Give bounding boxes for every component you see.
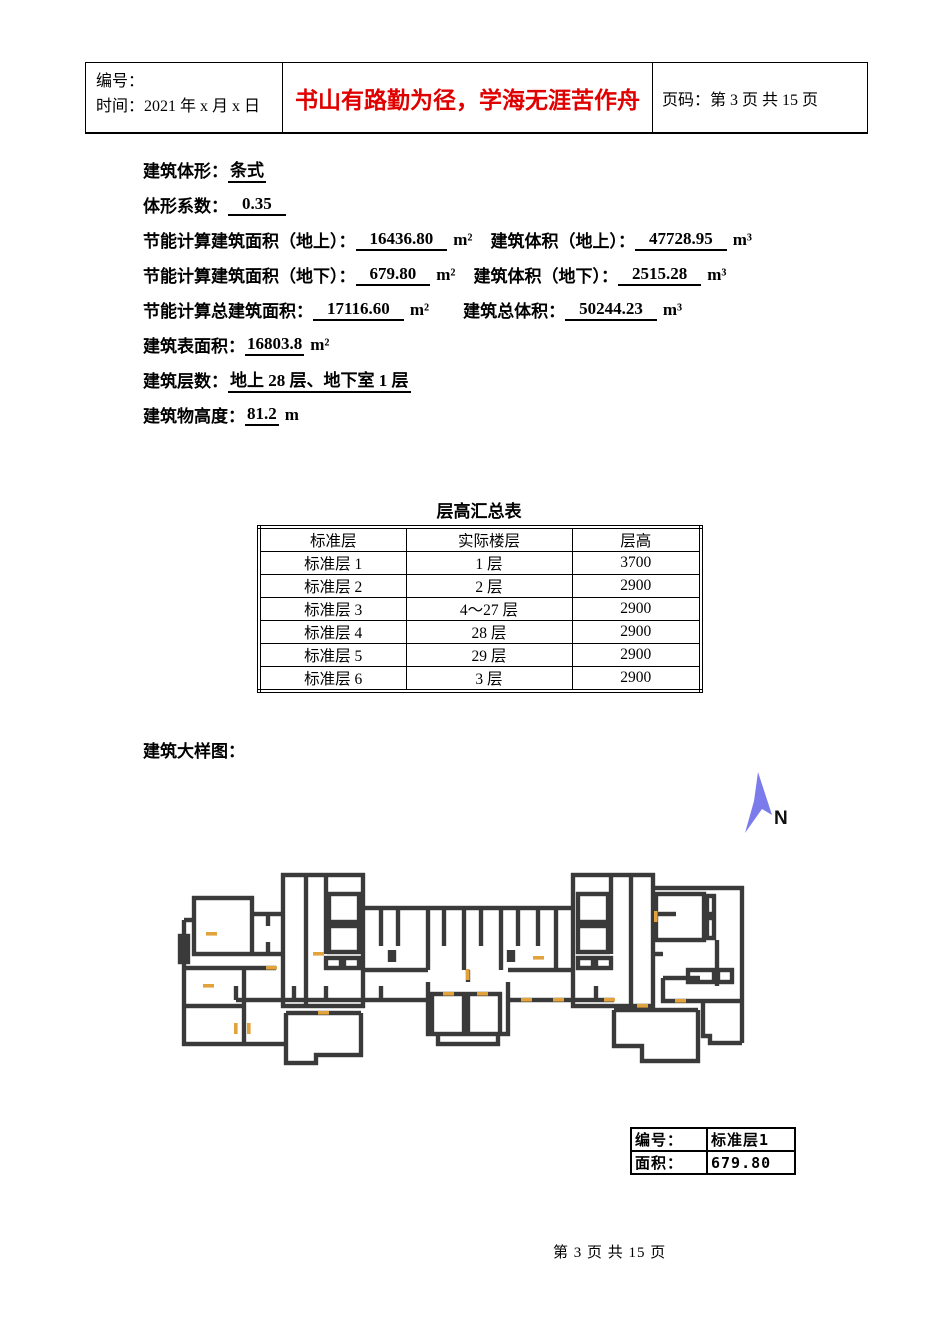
table-row: 编号： 标准层1: [631, 1128, 795, 1151]
info-line-floors: 建筑层数：地上 28 层、地下室 1 层: [143, 362, 752, 397]
volume-above-value: 47728.95: [635, 229, 727, 251]
cell-floor-height: 2900: [572, 644, 701, 667]
area-above-unit: m²: [453, 230, 472, 250]
volume-total-value: 50244.23: [565, 299, 657, 321]
area-below-label: 节能计算建筑面积（地下）：: [143, 262, 356, 287]
cell-standard-floor: 标准层 1: [259, 552, 406, 575]
header-time-label: 时间：2021 年 x 月 x 日: [96, 95, 282, 120]
plan-walls: [180, 875, 742, 1063]
floor-table-title: 层高汇总表: [258, 497, 700, 522]
table-row: 标准层 2 2 层 2900: [259, 575, 701, 598]
volume-above-unit: m³: [733, 230, 752, 250]
shape-value: 条式: [228, 156, 266, 183]
area-above-label: 节能计算建筑面积（地上）：: [143, 227, 356, 252]
header-table: 编号： 时间：2021 年 x 月 x 日 书山有路勤为径，学海无涯苦作舟 页码…: [85, 62, 868, 134]
cell-standard-floor: 标准层 6: [259, 667, 406, 692]
volume-total-unit: m³: [663, 300, 682, 320]
table-row: 标准层 6 3 层 2900: [259, 667, 701, 692]
surface-area-value: 16803.8: [245, 334, 304, 356]
area-total-value: 17116.60: [313, 299, 404, 321]
cell-standard-floor: 标准层 2: [259, 575, 406, 598]
north-label: N: [774, 808, 788, 829]
plan-area-value: 679.80: [707, 1151, 795, 1174]
volume-below-unit: m³: [707, 265, 726, 285]
area-total-unit: m²: [410, 300, 429, 320]
cell-standard-floor: 标准层 4: [259, 621, 406, 644]
north-arrow: N: [722, 768, 812, 840]
document-page: 编号： 时间：2021 年 x 月 x 日 书山有路勤为径，学海无涯苦作舟 页码…: [0, 0, 950, 1344]
cell-floor-height: 2900: [572, 575, 701, 598]
page-info: 页码：第 3 页 共 15 页: [662, 86, 818, 110]
table-row: 标准层 1 1 层 3700: [259, 552, 701, 575]
col-header: 层高: [572, 527, 701, 552]
plan-info-table: 编号： 标准层1 面积： 679.80: [630, 1127, 796, 1175]
header-number-label: 编号：: [96, 70, 282, 95]
area-below-unit: m²: [436, 265, 455, 285]
floor-table-header-row: 标准层 实际楼层 层高: [259, 527, 701, 552]
shape-label: 建筑体形：: [143, 157, 228, 182]
cell-floor-height: 2900: [572, 667, 701, 692]
height-unit: m: [285, 405, 299, 425]
slogan: 书山有路勤为径，学海无涯苦作舟: [295, 81, 640, 115]
info-line-height: 建筑物高度：81.2m: [143, 397, 752, 432]
area-below-value: 679.80: [356, 264, 431, 286]
plan-number-value: 标准层1: [707, 1128, 795, 1151]
volume-above-label: 建筑体积（地上）：: [491, 227, 636, 252]
height-label: 建筑物高度：: [143, 402, 245, 427]
floor-plan-drawing: [176, 858, 750, 1088]
coefficient-label: 体形系数：: [143, 192, 228, 217]
cell-floor-height: 2900: [572, 621, 701, 644]
col-header: 实际楼层: [406, 527, 572, 552]
table-row: 标准层 4 28 层 2900: [259, 621, 701, 644]
cell-actual-floor: 29 层: [406, 644, 572, 667]
cell-actual-floor: 28 层: [406, 621, 572, 644]
coefficient-value: 0.35: [228, 194, 286, 216]
volume-below-label: 建筑体积（地下）：: [474, 262, 619, 287]
floors-value: 地上 28 层、地下室 1 层: [228, 366, 411, 393]
info-line-area-below: 节能计算建筑面积（地下）：679.80m²建筑体积（地下）：2515.28m³: [143, 257, 752, 292]
cell-standard-floor: 标准层 5: [259, 644, 406, 667]
north-arrow-shape: [745, 772, 772, 833]
surface-area-unit: m²: [310, 335, 329, 355]
cell-actual-floor: 3 层: [406, 667, 572, 692]
floor-height-table: 标准层 实际楼层 层高 标准层 1 1 层 3700 标准层 2 2 层 290…: [257, 525, 703, 693]
table-row: 标准层 5 29 层 2900: [259, 644, 701, 667]
cell-actual-floor: 2 层: [406, 575, 572, 598]
info-line-surface-area: 建筑表面积：16803.8m²: [143, 327, 752, 362]
table-row: 标准层 3 4～27 层 2900: [259, 598, 701, 621]
info-line-shape: 建筑体形：条式: [143, 152, 752, 187]
page-footer: 第 3 页 共 15 页: [553, 1241, 666, 1262]
plan-number-label: 编号：: [631, 1128, 707, 1151]
area-total-label: 节能计算总建筑面积：: [143, 297, 313, 322]
cell-actual-floor: 4～27 层: [406, 598, 572, 621]
info-line-area-total: 节能计算总建筑面积：17116.60m²建筑总体积：50244.23m³: [143, 292, 752, 327]
header-slogan-cell: 书山有路勤为径，学海无涯苦作舟: [283, 63, 653, 132]
building-info-block: 建筑体形：条式 体形系数：0.35 节能计算建筑面积（地上）：16436.80m…: [143, 152, 752, 432]
volume-total-label: 建筑总体积：: [463, 297, 565, 322]
info-line-area-above: 节能计算建筑面积（地上）：16436.80m²建筑体积（地上）：47728.95…: [143, 222, 752, 257]
height-value: 81.2: [245, 404, 279, 426]
floors-label: 建筑层数：: [143, 367, 228, 392]
cell-actual-floor: 1 层: [406, 552, 572, 575]
area-above-value: 16436.80: [356, 229, 448, 251]
table-row: 面积： 679.80: [631, 1151, 795, 1174]
cell-floor-height: 2900: [572, 598, 701, 621]
cell-standard-floor: 标准层 3: [259, 598, 406, 621]
plan-area-label: 面积：: [631, 1151, 707, 1174]
header-left-cell: 编号： 时间：2021 年 x 月 x 日: [86, 63, 283, 132]
header-page-cell: 页码：第 3 页 共 15 页: [653, 63, 867, 132]
plan-section-label: 建筑大样图：: [143, 737, 245, 762]
surface-area-label: 建筑表面积：: [143, 332, 245, 357]
volume-below-value: 2515.28: [618, 264, 701, 286]
col-header: 标准层: [259, 527, 406, 552]
cell-floor-height: 3700: [572, 552, 701, 575]
info-line-coefficient: 体形系数：0.35: [143, 187, 752, 222]
